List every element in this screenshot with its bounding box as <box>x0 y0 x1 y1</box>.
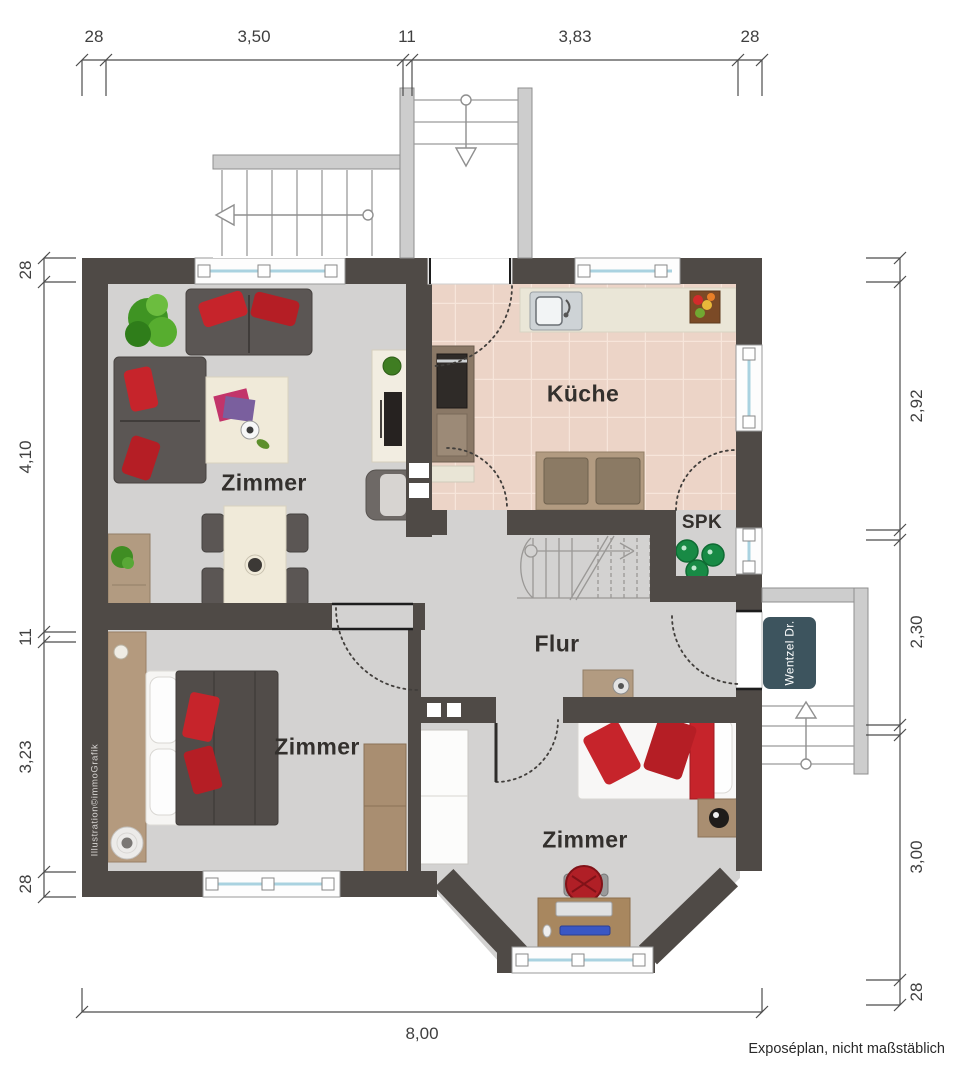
street-sign-text: Wentzel Dr. <box>783 620 797 685</box>
entry-door-opening <box>736 611 762 689</box>
illustrator-credit: Illustration©immoGrafik <box>90 744 101 857</box>
dim-top-4: 28 <box>741 27 760 47</box>
dim-left-3: 3,23 <box>16 740 36 773</box>
dim-top-2: 11 <box>398 27 416 47</box>
room-label-hall: Flur <box>534 631 579 658</box>
coffee-table <box>206 377 288 463</box>
room-label-kitchen: Küche <box>547 381 619 408</box>
kitchen-top-door-opening <box>428 258 512 284</box>
kitchen-table <box>536 452 644 510</box>
window-kitchen-top <box>575 258 680 284</box>
sofa-top <box>186 289 312 355</box>
dim-right-3: 28 <box>907 983 927 1002</box>
dim-left-2: 11 <box>16 628 36 646</box>
dim-left-1: 4,10 <box>16 440 36 473</box>
window-bedroom-left <box>203 871 340 897</box>
room-label-bedroom-left: Zimmer <box>274 734 359 761</box>
dim-bottom-0: 8,00 <box>405 1024 438 1044</box>
sofa-left <box>114 357 206 483</box>
room-label-pantry: SPK <box>682 512 722 534</box>
cabinet-white <box>420 730 468 864</box>
floor-plan-graphics <box>0 0 954 1080</box>
dim-right-0: 2,92 <box>907 389 927 422</box>
window-pantry <box>736 528 762 574</box>
exterior-stairs-top <box>213 88 532 258</box>
street-sign: Wentzel Dr. <box>763 617 816 689</box>
dim-left-4: 28 <box>16 875 36 894</box>
kitchen-counter <box>520 288 736 332</box>
room-label-living: Zimmer <box>221 470 306 497</box>
dim-top-3: 3,83 <box>558 27 591 47</box>
wardrobe <box>364 744 406 872</box>
dim-right-2: 3,00 <box>907 840 927 873</box>
disclaimer-text: Exposéplan, nicht maßstäblich <box>748 1041 945 1057</box>
dim-top-1: 3,50 <box>237 27 270 47</box>
window-living-top <box>195 258 345 284</box>
dim-right-1: 2,30 <box>907 615 927 648</box>
nightstand <box>698 799 740 837</box>
dim-left-0: 28 <box>16 261 36 280</box>
sideboard <box>108 534 150 610</box>
room-label-bedroom-right: Zimmer <box>542 827 627 854</box>
floor-plan: Zimmer Küche SPK Flur Zimmer Zimmer 28 3… <box>0 0 954 1080</box>
dim-top-0: 28 <box>85 27 104 47</box>
bed-single <box>578 711 740 801</box>
window-kitchen-right <box>736 345 762 431</box>
bedroom-left-door-opening <box>332 603 413 630</box>
window-bay <box>512 947 653 973</box>
